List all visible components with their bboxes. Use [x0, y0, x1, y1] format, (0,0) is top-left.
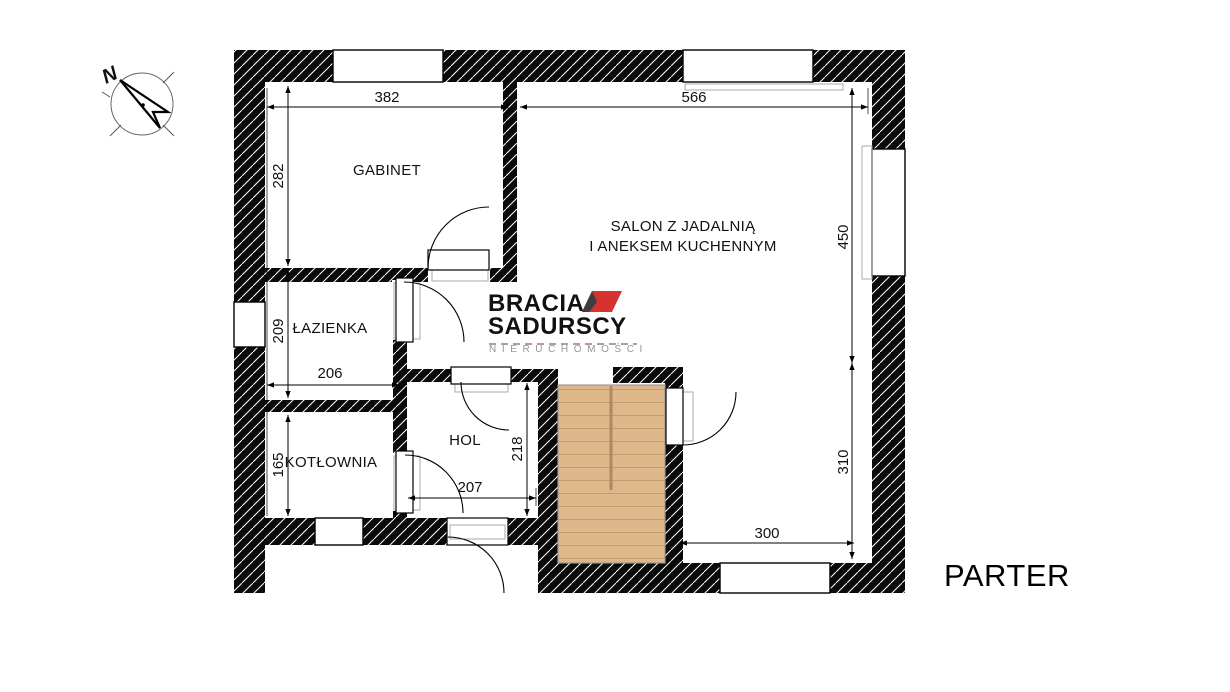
dim-lazienka-width: 206	[317, 365, 342, 382]
window-salon-bottom	[720, 563, 830, 593]
window-gabinet-top	[333, 50, 443, 82]
door-stairs-salon-leaf	[666, 388, 683, 445]
room-label-salon-line1: SALON Z JADALNIĄ	[611, 218, 757, 235]
wall-stairs-north	[613, 367, 683, 383]
room-label-lazienka: ŁAZIENKA	[293, 320, 368, 337]
compass-center-dot	[141, 103, 145, 107]
dim-gabinet-height: 282	[270, 163, 287, 188]
room-label-salon-line2: I ANEKSEM KUCHENNYM	[589, 238, 776, 255]
dim-salon-bottom-width: 300	[754, 525, 779, 542]
logo-line2: SADURSCY	[488, 313, 627, 340]
dim-hol-width: 207	[457, 479, 482, 496]
window-salon-top	[683, 50, 813, 82]
floor-plan-page: 382 566 282 209 206 165 218 207 450 310 …	[0, 0, 1230, 692]
dim-salon-width: 566	[681, 89, 706, 106]
logo-line3: NIERUCHOMOŚCI	[489, 342, 648, 355]
dim-salon-lower-height: 310	[835, 449, 852, 474]
wall-stairs-west	[538, 369, 558, 593]
dim-hol-height: 218	[509, 436, 526, 461]
room-label-gabinet: GABINET	[353, 162, 421, 179]
room-label-kotlownia: KOTŁOWNIA	[285, 454, 378, 471]
room-label-hol: HOL	[449, 432, 481, 449]
dim-salon-upper-height: 450	[835, 224, 852, 249]
floor-plan-svg: 382 566 282 209 206 165 218 207 450 310 …	[0, 0, 1230, 692]
wall-lazienka-kotlownia	[265, 400, 393, 412]
door-lazienka-leaf	[396, 278, 413, 342]
wall-exterior-entrance	[263, 518, 558, 545]
wall-exterior-right	[872, 50, 905, 593]
window-salon-right	[872, 149, 905, 276]
window-kotlownia-bottom	[315, 518, 363, 545]
dim-lazienka-height: 209	[270, 318, 287, 343]
door-entrance-leaf	[447, 518, 508, 545]
window-lazienka-left	[234, 302, 265, 347]
dim-gabinet-width: 382	[374, 89, 399, 106]
plan-title: PARTER	[944, 558, 1070, 593]
door-hol-north-leaf	[451, 367, 511, 384]
door-gabinet-leaf	[428, 250, 489, 270]
stairs	[558, 385, 665, 563]
door-kotlownia-leaf	[396, 451, 413, 513]
